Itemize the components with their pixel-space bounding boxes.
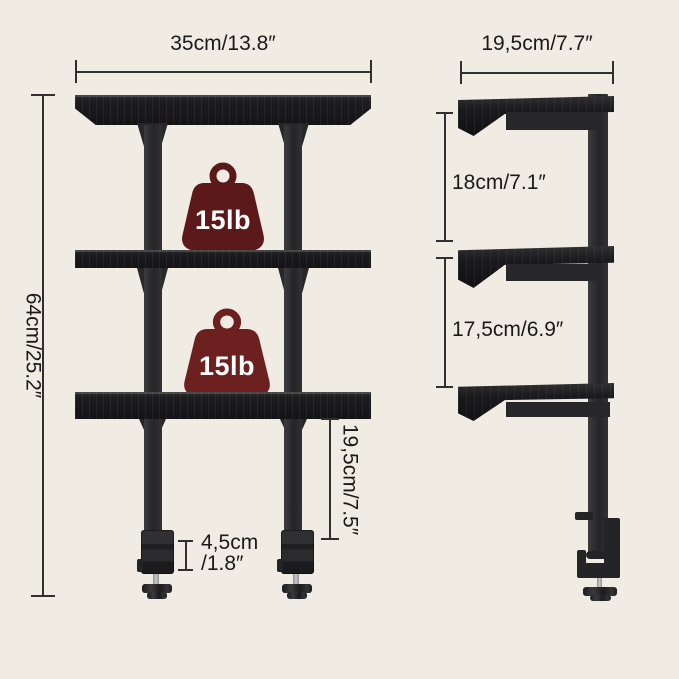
clamp-knob <box>287 592 307 599</box>
side-shelf-bracket <box>506 402 610 417</box>
clamp-bottom-arm <box>577 563 620 578</box>
depth-dimension-label: 19,5cm/7.7″ <box>447 31 627 56</box>
width-dimension-label: 35cm/13.8″ <box>98 31 348 56</box>
dimension-tick <box>321 538 339 540</box>
dimension-tick <box>436 240 453 242</box>
clamp-opening-label-line2: /1.8″ <box>201 553 301 574</box>
right-leg-lower <box>284 419 302 532</box>
right-leg-upper <box>284 125 302 252</box>
dimension-line <box>444 258 446 388</box>
dimension-tick <box>178 540 193 542</box>
bottom-shelf <box>75 392 371 419</box>
clamp-top-pad <box>575 512 593 520</box>
height-dimension-label: 64cm/25.2″ <box>21 280 46 412</box>
side-shelf-bracket <box>506 264 602 281</box>
weight-capacity-label: 15lb <box>180 205 266 235</box>
dimension-tick <box>178 569 193 571</box>
left-leg-upper <box>144 125 162 252</box>
clamp-lip <box>137 559 143 572</box>
middle-tier-label: 17,5cm/6.9″ <box>452 317 602 342</box>
dimension-tick <box>31 94 55 96</box>
clamp-opening-label: 4,5cm /1.8″ <box>201 532 301 574</box>
left-leg-lower <box>144 419 162 532</box>
dimension-tick <box>370 60 372 83</box>
shelf-to-clamp-label: 19,5cm/7.5″ <box>338 413 363 547</box>
dimension-tick <box>460 61 462 84</box>
clamp-knob <box>590 595 611 601</box>
right-leg-middle <box>284 268 302 394</box>
dimension-tick <box>75 60 77 83</box>
dimension-tick <box>612 61 614 84</box>
product-dimension-diagram: 35cm/13.8″ 64cm/25.2″ 15lb <box>0 0 679 679</box>
clamp-knob <box>147 592 167 599</box>
dimension-line <box>329 419 331 540</box>
clamp-pad <box>586 551 608 559</box>
weight-capacity-label: 15lb <box>182 351 272 381</box>
top-shelf <box>75 95 371 125</box>
dimension-line <box>444 113 446 242</box>
dimension-tick <box>436 386 453 388</box>
dimension-line <box>185 541 187 571</box>
clamp-opening-label-line1: 4,5cm <box>201 532 301 553</box>
clamp-body <box>141 530 174 574</box>
dimension-tick <box>31 595 55 597</box>
middle-shelf <box>75 250 371 268</box>
dimension-tick <box>321 418 339 420</box>
dimension-tick <box>436 112 453 114</box>
left-leg-middle <box>144 268 162 394</box>
dimension-line <box>76 71 371 73</box>
dimension-line <box>461 72 613 74</box>
dimension-tick <box>436 257 453 259</box>
side-shelf-bracket <box>506 112 602 130</box>
top-tier-label: 18cm/7.1″ <box>452 170 582 195</box>
